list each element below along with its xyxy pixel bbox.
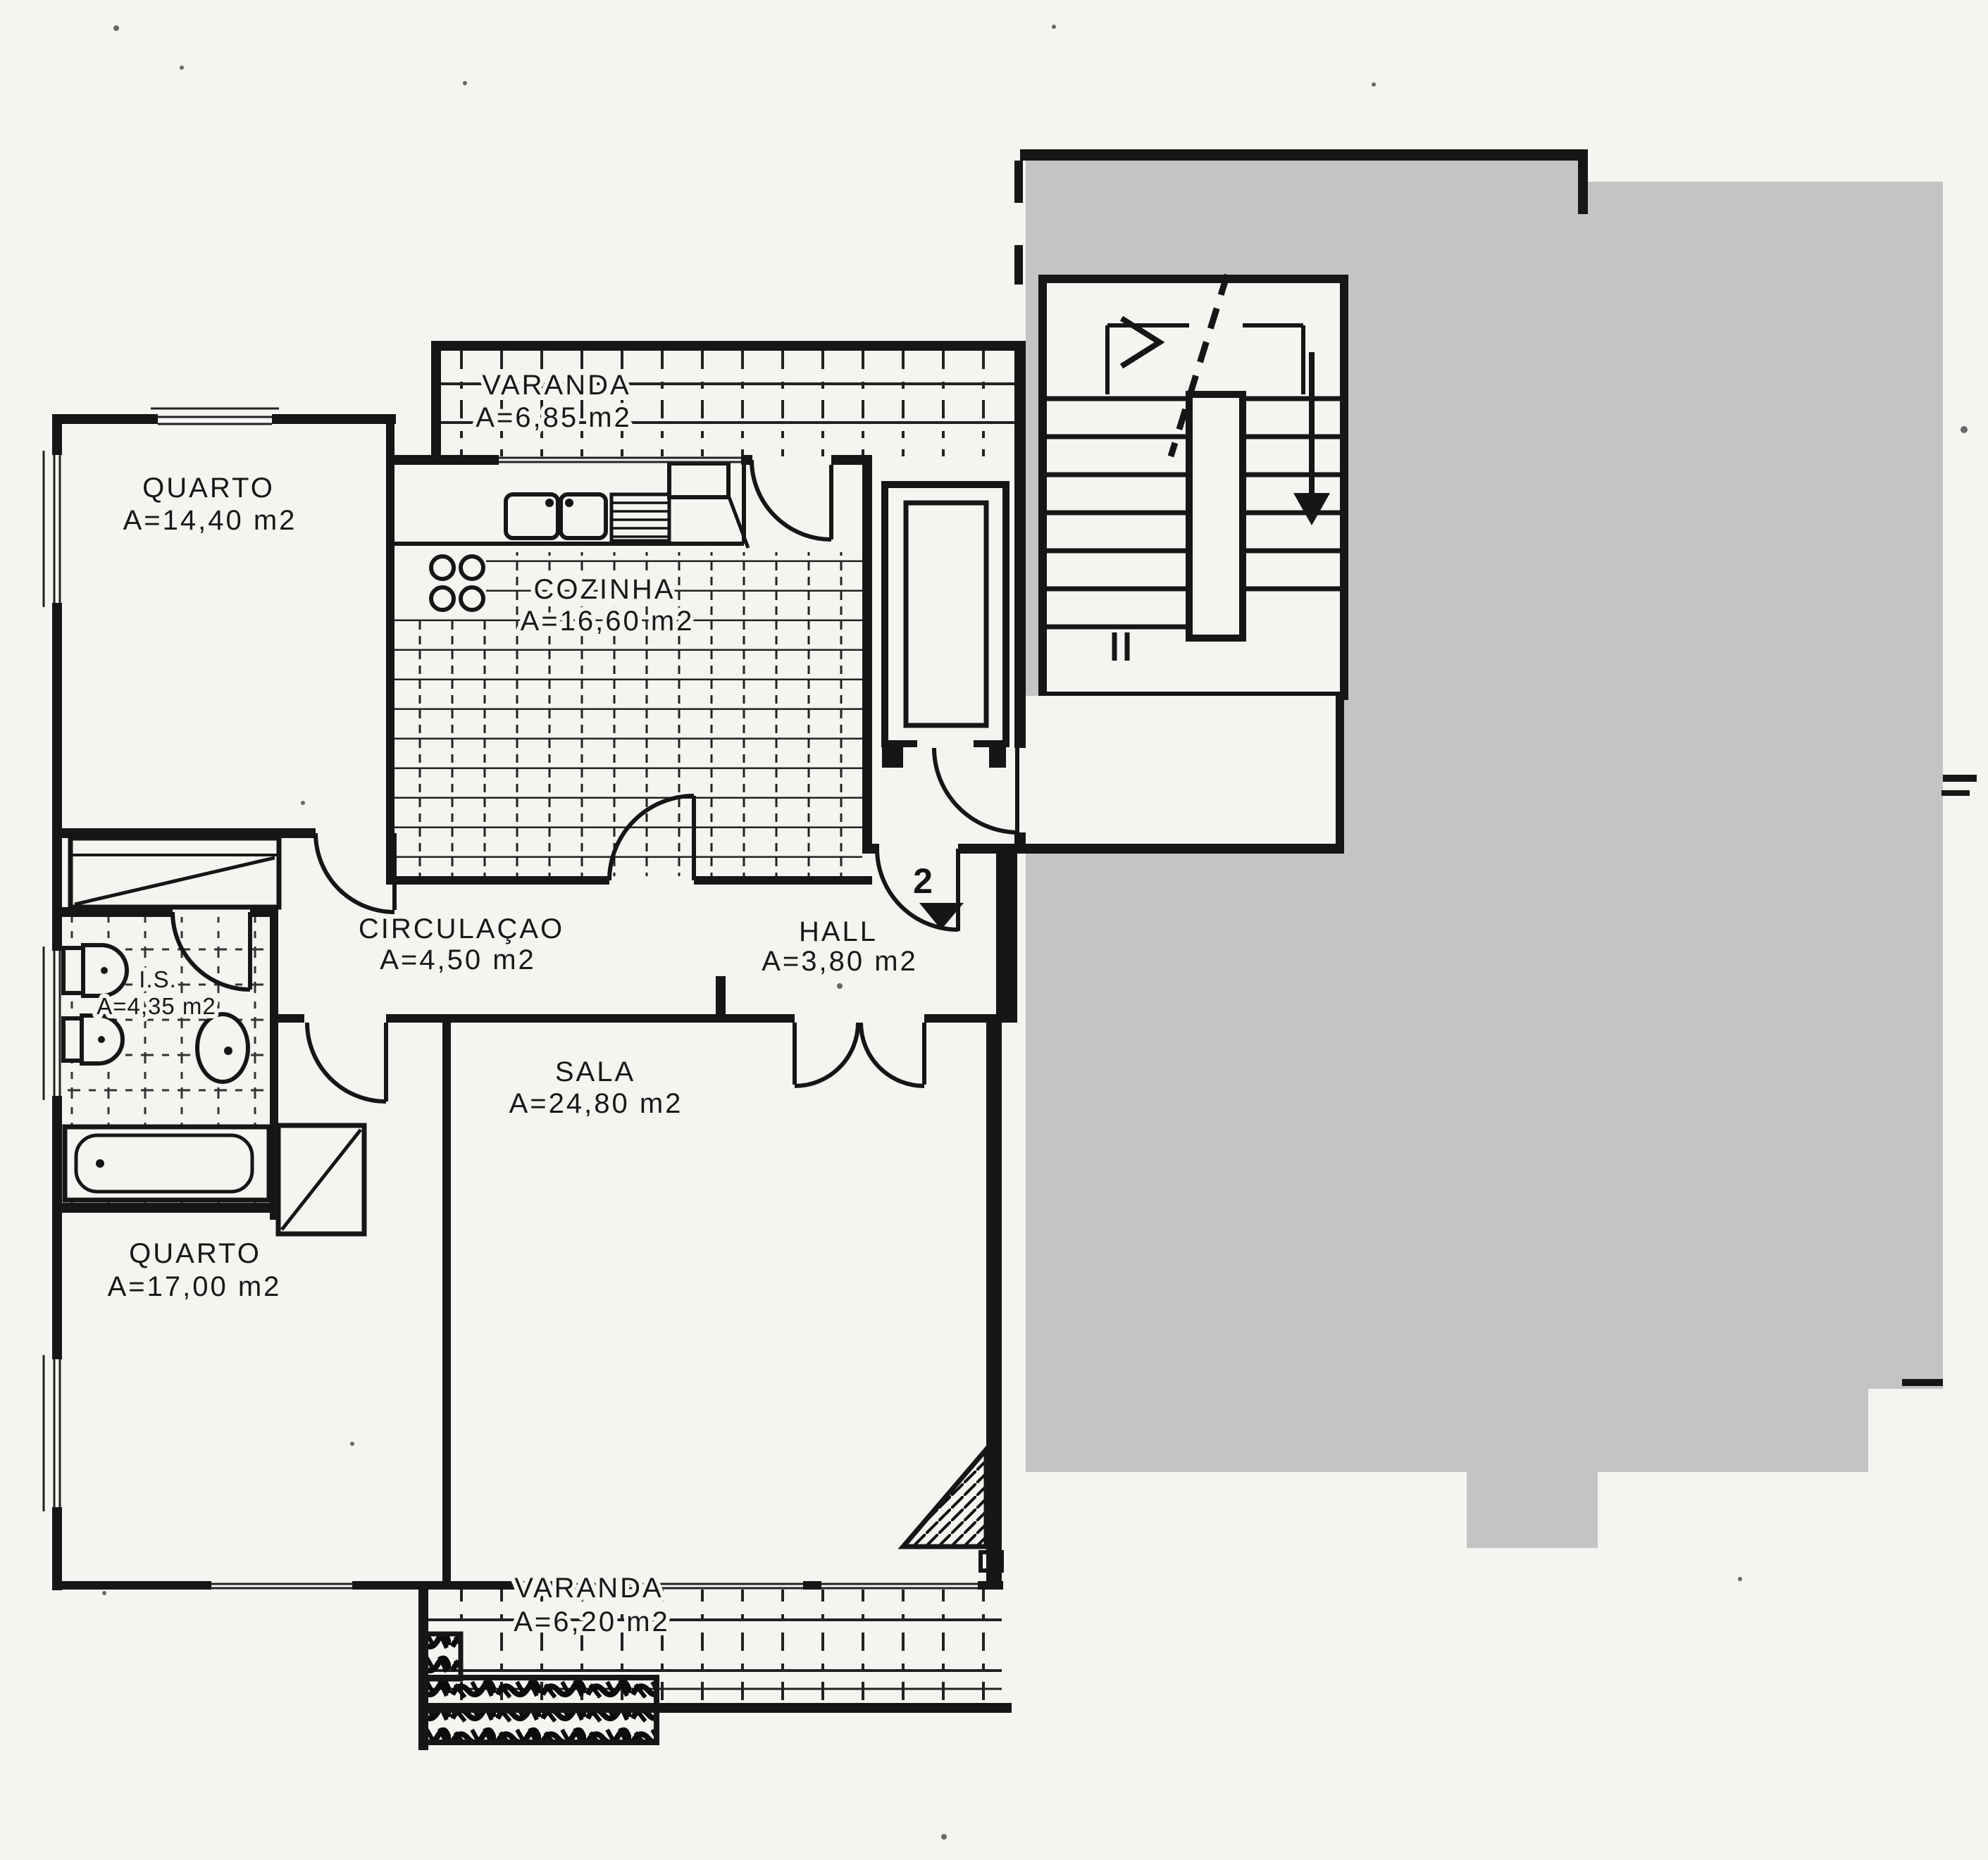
label-varanda-bottom-name: VARANDA xyxy=(514,1573,663,1604)
stair-landing xyxy=(1020,696,1344,854)
kitchen-drainer xyxy=(611,494,669,541)
label-quarto-1-area: A=14,40 m2 xyxy=(123,505,297,536)
label-sala-name: SALA xyxy=(555,1056,635,1087)
stairwell xyxy=(1043,275,1344,696)
apartment-number-label: 2 xyxy=(913,861,933,901)
label-varanda-top-area: A=6,85 m2 xyxy=(476,402,632,433)
floor-plan-page: 2 VARANDA A=6,85 m2 QUARTO A=14,40 m2 CO… xyxy=(0,0,1988,1860)
stair-well-void xyxy=(1189,394,1243,638)
label-quarto-1-name: QUARTO xyxy=(142,473,275,504)
label-hall-area: A=3,80 m2 xyxy=(762,946,918,977)
label-varanda-bottom-area: A=6,20 m2 xyxy=(514,1606,670,1637)
label-cozinha-area: A=16,60 m2 xyxy=(521,606,695,637)
label-sala-area: A=24,80 m2 xyxy=(509,1088,683,1119)
kitchen-cupboard xyxy=(669,463,728,497)
label-is-area: A=4,35 m2 xyxy=(97,993,216,1019)
label-is-name: I.S. xyxy=(139,966,177,992)
label-varanda-top-name: VARANDA xyxy=(482,370,630,401)
label-hall-name: HALL xyxy=(799,916,878,947)
label-quarto-2-name: QUARTO xyxy=(129,1238,261,1269)
label-quarto-2-area: A=17,00 m2 xyxy=(108,1271,282,1302)
floor-plan-svg: 2 VARANDA A=6,85 m2 QUARTO A=14,40 m2 CO… xyxy=(0,0,1988,1860)
washbasin xyxy=(197,1014,248,1082)
label-cozinha-name: COZINHA xyxy=(534,574,676,605)
elevator-shaft xyxy=(882,485,1006,768)
label-circulacao-area: A=4,50 m2 xyxy=(380,944,536,975)
label-circulacao-name: CIRCULAÇAO xyxy=(359,913,564,944)
